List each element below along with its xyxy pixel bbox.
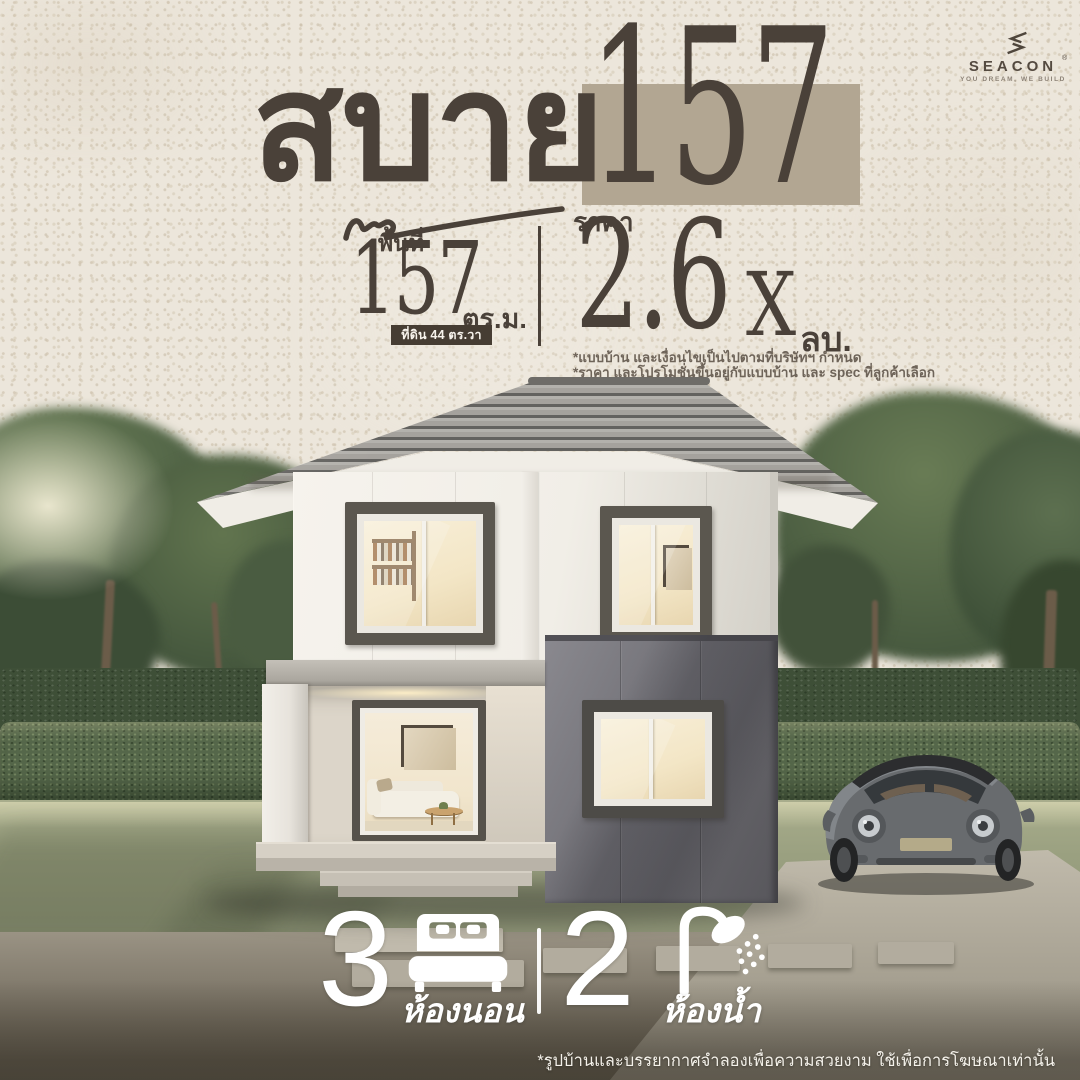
stats-divider-line: [538, 226, 541, 346]
upper-right-window: [600, 506, 712, 644]
porch-pillar: [262, 684, 308, 860]
glass-reflection: [364, 521, 450, 626]
glass-reflection: [601, 719, 675, 799]
bathroom-count: 2: [560, 898, 635, 1020]
bedroom-count: 3: [318, 898, 393, 1020]
interior-floor: [365, 821, 473, 831]
bed-icon: [408, 914, 508, 992]
window-glass: [364, 521, 476, 626]
price-value: 2.6: [575, 207, 729, 347]
features-divider-line: [537, 928, 541, 1014]
bedroom-label: ห้องนอน: [401, 984, 524, 1037]
price-masked-digit: X: [746, 264, 796, 346]
house-advert-poster: สบาย 157 SEACON ® YOU DREAM, WE BUILD พื…: [0, 0, 1080, 1080]
bathroom-label: ห้องน้ำ: [662, 984, 761, 1037]
table-leg: [431, 813, 433, 825]
shower-icon: [674, 902, 766, 996]
car: [806, 738, 1044, 898]
table-leg: [453, 813, 455, 825]
living-room-picture: [401, 725, 453, 767]
seacon-tagline: YOU DREAM, WE BUILD: [958, 76, 1068, 83]
price-disclaimer-1: *แบบบ้าน และเงื่อนไขเป็นไปตามที่บริษัทฯ …: [573, 350, 1023, 365]
seacon-s-icon: [1004, 30, 1030, 56]
seacon-logo: SEACON ® YOU DREAM, WE BUILD: [958, 28, 1074, 90]
upper-left-window: [345, 502, 495, 645]
table-plant: [439, 802, 448, 809]
stepping-stone: [878, 942, 954, 964]
window-glass: [619, 525, 693, 625]
title-house-number: 157: [588, 0, 831, 215]
registered-mark: ®: [1062, 55, 1067, 62]
window-glass: [601, 719, 705, 799]
wall-center-pilaster: [521, 472, 538, 664]
land-size-badge: ที่ดิน 44 ตร.วา: [391, 325, 492, 345]
door-glass: [365, 713, 473, 831]
title-house-name: สบาย: [252, 52, 603, 202]
footer-disclaimer: *รูปบ้านและบรรยากาศจำลองเพื่อความสวยงาม …: [520, 1048, 1055, 1074]
sliding-glass-door: [352, 700, 486, 841]
porch-side-wall: [486, 686, 545, 844]
lower-right-window: [582, 700, 724, 818]
seacon-wordmark: SEACON: [958, 58, 1068, 75]
floor-divider-beam: [266, 660, 545, 686]
porch-floor-face: [256, 858, 556, 871]
stepping-stone: [768, 944, 852, 968]
price-disclaimer-2: *ราคา และโปรโมชั่นขึ้นอยู่กับแบบบ้าน และ…: [573, 365, 1023, 380]
